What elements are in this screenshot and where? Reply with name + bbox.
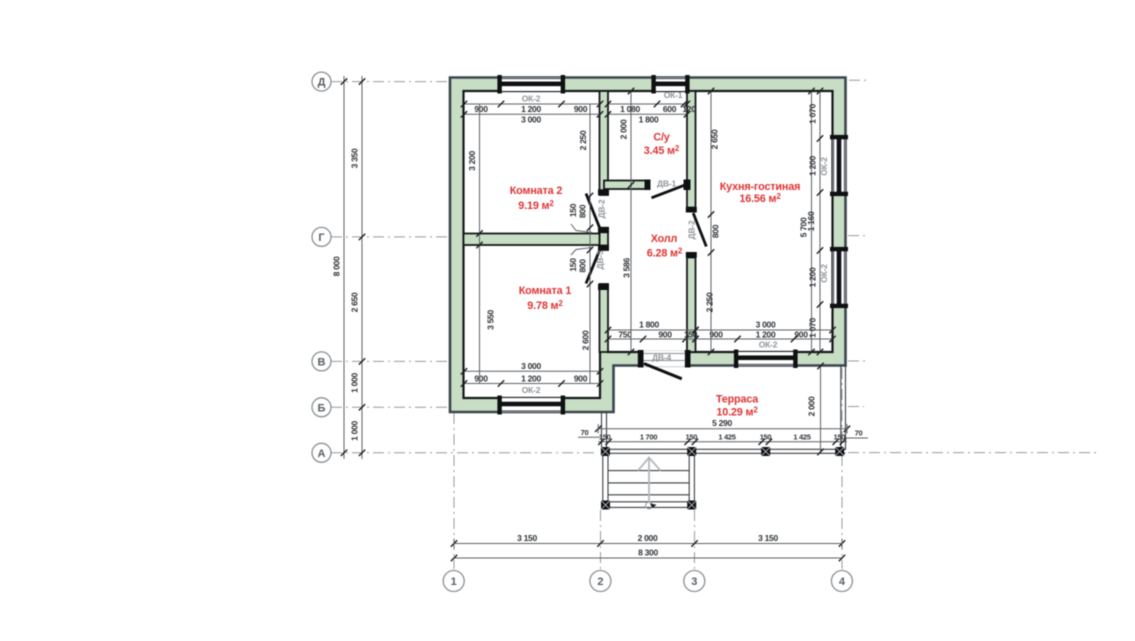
svg-text:150: 150 bbox=[760, 433, 772, 442]
svg-text:Кухня-гостиная: Кухня-гостиная bbox=[720, 181, 801, 193]
svg-text:8 300: 8 300 bbox=[638, 548, 658, 558]
svg-text:1 160: 1 160 bbox=[806, 211, 816, 231]
svg-text:750: 750 bbox=[618, 329, 632, 339]
svg-text:ОК-2: ОК-2 bbox=[759, 340, 778, 350]
svg-text:ДВ-3: ДВ-3 bbox=[595, 250, 605, 269]
svg-text:900: 900 bbox=[658, 329, 672, 339]
svg-text:2 000: 2 000 bbox=[619, 119, 629, 139]
svg-text:3.45 м2: 3.45 м2 bbox=[644, 144, 680, 157]
svg-text:1 800: 1 800 bbox=[639, 115, 659, 125]
svg-text:1: 1 bbox=[451, 576, 457, 588]
svg-text:Комната 2: Комната 2 bbox=[510, 185, 563, 197]
svg-text:1 800: 1 800 bbox=[639, 319, 659, 329]
svg-text:В: В bbox=[318, 356, 326, 368]
svg-text:3 550: 3 550 bbox=[486, 310, 496, 330]
svg-text:Б: Б bbox=[318, 402, 326, 414]
svg-text:150: 150 bbox=[833, 433, 845, 442]
svg-text:2 650: 2 650 bbox=[350, 292, 360, 312]
svg-text:2 250: 2 250 bbox=[705, 292, 715, 312]
svg-text:Комната 1: Комната 1 bbox=[519, 285, 572, 297]
svg-text:ДВ-1: ДВ-1 bbox=[657, 179, 676, 189]
svg-text:16.56 м2: 16.56 м2 bbox=[739, 192, 781, 205]
svg-text:А: А bbox=[318, 448, 326, 460]
svg-text:2 250: 2 250 bbox=[578, 130, 588, 150]
svg-text:1 000: 1 000 bbox=[350, 373, 360, 393]
svg-text:1 200: 1 200 bbox=[756, 329, 776, 339]
svg-text:1 070: 1 070 bbox=[808, 318, 818, 338]
svg-text:С/у: С/у bbox=[653, 132, 669, 144]
svg-text:Холл: Холл bbox=[651, 233, 678, 245]
svg-text:2 650: 2 650 bbox=[710, 129, 720, 149]
svg-text:3 200: 3 200 bbox=[467, 151, 477, 171]
svg-text:3 000: 3 000 bbox=[756, 319, 776, 329]
svg-text:2 000: 2 000 bbox=[638, 533, 658, 543]
svg-text:ОК-2: ОК-2 bbox=[522, 385, 541, 395]
svg-text:150: 150 bbox=[599, 433, 611, 442]
svg-text:ДВ-2: ДВ-2 bbox=[597, 199, 607, 218]
svg-text:1 080: 1 080 bbox=[620, 104, 640, 114]
svg-text:900: 900 bbox=[474, 373, 488, 383]
svg-text:70: 70 bbox=[581, 428, 589, 437]
svg-text:1 700: 1 700 bbox=[640, 433, 657, 442]
svg-text:5 290: 5 290 bbox=[712, 418, 732, 428]
svg-text:9.78 м2: 9.78 м2 bbox=[527, 299, 563, 312]
svg-text:ОК-2: ОК-2 bbox=[522, 94, 541, 104]
svg-text:9.19 м2: 9.19 м2 bbox=[518, 199, 554, 212]
svg-text:2 600: 2 600 bbox=[581, 330, 591, 350]
svg-text:3 000: 3 000 bbox=[521, 115, 541, 125]
svg-text:3 586: 3 586 bbox=[622, 258, 632, 278]
svg-text:900: 900 bbox=[474, 104, 488, 114]
svg-text:ОК-1: ОК-1 bbox=[664, 90, 683, 100]
svg-text:1 200: 1 200 bbox=[521, 104, 541, 114]
svg-text:3 000: 3 000 bbox=[521, 361, 541, 371]
svg-text:3 350: 3 350 bbox=[350, 148, 360, 168]
svg-text:150: 150 bbox=[568, 203, 578, 217]
svg-text:150: 150 bbox=[568, 258, 578, 272]
svg-text:900: 900 bbox=[574, 373, 588, 383]
svg-text:Д: Д bbox=[318, 77, 326, 89]
svg-text:Терраса: Терраса bbox=[716, 394, 759, 406]
svg-text:2: 2 bbox=[597, 576, 603, 588]
svg-text:1 000: 1 000 bbox=[350, 421, 360, 441]
svg-text:1 070: 1 070 bbox=[808, 104, 818, 124]
svg-text:150: 150 bbox=[685, 433, 697, 442]
svg-text:3: 3 bbox=[691, 576, 697, 588]
svg-text:70: 70 bbox=[855, 429, 863, 438]
svg-text:Г: Г bbox=[318, 232, 325, 244]
svg-text:6.28 м2: 6.28 м2 bbox=[647, 247, 683, 260]
svg-text:600: 600 bbox=[663, 104, 677, 114]
svg-text:1 200: 1 200 bbox=[521, 373, 541, 383]
svg-text:4: 4 bbox=[839, 576, 846, 588]
svg-text:3 150: 3 150 bbox=[517, 533, 537, 543]
svg-text:2 000: 2 000 bbox=[807, 396, 817, 416]
svg-text:1 200: 1 200 bbox=[808, 156, 818, 176]
svg-text:900: 900 bbox=[574, 104, 588, 114]
svg-text:1 425: 1 425 bbox=[718, 433, 735, 442]
svg-text:800: 800 bbox=[578, 204, 588, 218]
svg-text:800: 800 bbox=[578, 259, 588, 273]
svg-text:1 200: 1 200 bbox=[808, 267, 818, 287]
svg-text:ДВ-4: ДВ-4 bbox=[652, 353, 671, 363]
svg-text:ДВ-2: ДВ-2 bbox=[687, 220, 697, 239]
svg-text:10.29 м2: 10.29 м2 bbox=[716, 406, 758, 419]
svg-text:3 150: 3 150 bbox=[758, 533, 778, 543]
svg-text:8 000: 8 000 bbox=[332, 256, 342, 276]
svg-text:800: 800 bbox=[711, 224, 721, 238]
svg-text:900: 900 bbox=[794, 329, 808, 339]
svg-text:1 425: 1 425 bbox=[793, 433, 810, 442]
